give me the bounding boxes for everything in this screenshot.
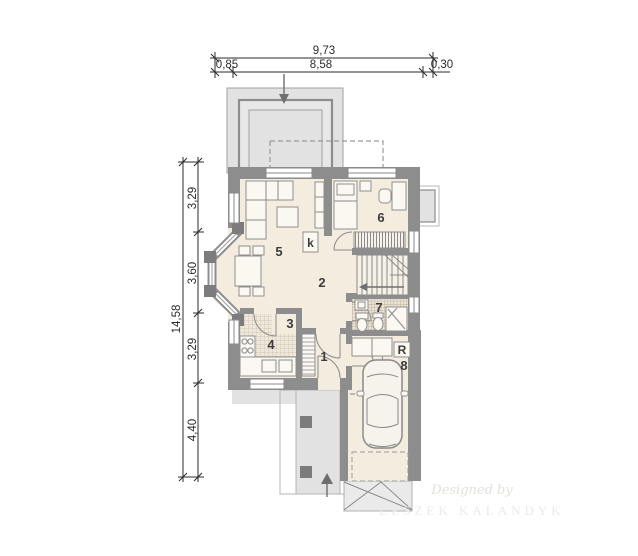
- desk: [392, 182, 406, 210]
- bidet: [373, 318, 383, 331]
- dim-left-total: 14,58: [171, 305, 183, 334]
- room-label-1: 1: [320, 349, 327, 364]
- chair: [253, 287, 264, 296]
- top-dimension-lines: 9,73 0,85 8,58 0,30: [210, 45, 453, 78]
- right-window-1: [409, 231, 419, 253]
- floor-plan-drawing: 9,73 0,85 8,58 0,30 14,58 3,29 3,60 3,29…: [0, 0, 638, 556]
- chair: [239, 287, 250, 296]
- dim-left-seg3: 3,29: [187, 338, 199, 360]
- fence-post: [300, 466, 312, 478]
- kitchen-left-window: [229, 320, 239, 344]
- kitchen-bottom-window: [250, 379, 284, 389]
- larder-cabinet: [302, 334, 315, 376]
- watermark-line2: LESZEK KALANDYK: [379, 503, 564, 518]
- living-left-window: [229, 193, 239, 223]
- pillow: [337, 184, 354, 195]
- entry-path: [232, 390, 345, 497]
- staircase: [357, 255, 408, 295]
- fence-post: [300, 416, 312, 428]
- wardrobe: [354, 232, 405, 248]
- room-label-8: 8: [400, 358, 407, 373]
- dim-top-seg3: 0,30: [431, 59, 453, 71]
- dim-top-seg2: 8,58: [310, 59, 332, 71]
- dim-left-seg1: 3,29: [187, 187, 199, 209]
- room-label-5: 5: [275, 244, 282, 259]
- dining-table: [235, 256, 261, 286]
- upper-terrace: [227, 74, 343, 173]
- car: [357, 360, 408, 448]
- watermark-line1: Designed by: [430, 483, 513, 498]
- room-label-3: 3: [286, 316, 293, 331]
- closet-label-k: k: [307, 236, 314, 250]
- side-mirror: [357, 391, 364, 396]
- terrace-door: [266, 168, 312, 178]
- toilet: [357, 319, 367, 332]
- room-label-4: 4: [267, 337, 275, 352]
- dim-top-seg1: 0,85: [216, 59, 238, 71]
- coffee-table: [277, 207, 298, 227]
- shelf-cabinet: [315, 182, 324, 228]
- dim-left-seg4: 4,40: [187, 419, 199, 441]
- right-protrusion: [417, 186, 439, 226]
- chair: [239, 246, 250, 255]
- room-label-7: 7: [375, 300, 382, 315]
- floor-plan-canvas: 9,73 0,85 8,58 0,30 14,58 3,29 3,60 3,29…: [0, 0, 638, 556]
- room-label-6: 6: [377, 210, 384, 225]
- nightstand: [360, 181, 371, 191]
- dim-top-total: 9,73: [313, 45, 335, 57]
- desk-chair: [379, 189, 391, 203]
- room-label-2: 2: [318, 275, 325, 290]
- bedroom-window: [348, 168, 396, 178]
- dim-left-seg2: 3,60: [187, 262, 199, 284]
- left-dimension-lines: 14,58 3,29 3,60 3,29 4,40: [171, 157, 204, 482]
- stove: [240, 336, 255, 357]
- chair: [253, 246, 264, 255]
- bathroom-window: [409, 297, 419, 313]
- side-mirror: [401, 391, 408, 396]
- boiler-label-r: R: [398, 343, 407, 357]
